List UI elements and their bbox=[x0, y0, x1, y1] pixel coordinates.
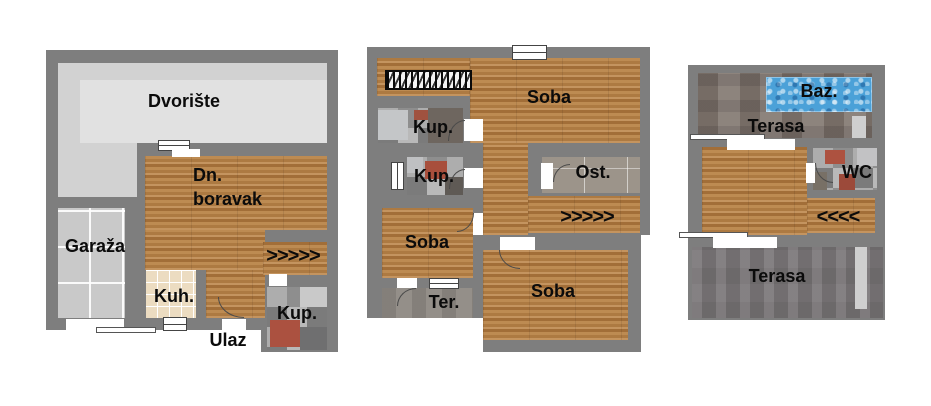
window-icon bbox=[391, 162, 404, 190]
room-label-bazen: Baz. bbox=[800, 82, 837, 100]
floor-plan-canvas: Dvorište Dn. boravak Garaža Kuh. Kup. Ul… bbox=[0, 0, 931, 406]
window-icon bbox=[512, 45, 547, 60]
bench-strip bbox=[852, 116, 866, 138]
door-opening bbox=[464, 168, 483, 188]
stairs-arrows-attic: <<<< bbox=[817, 207, 860, 227]
kitchen-window-icon bbox=[163, 317, 187, 331]
door-opening bbox=[473, 213, 483, 235]
door-opening bbox=[464, 119, 483, 141]
room-garaza-floor bbox=[58, 208, 125, 318]
door-opening bbox=[172, 149, 200, 157]
living-label-line2: boravak bbox=[193, 187, 262, 211]
room-label-kuhinja: Kuh. bbox=[154, 287, 194, 305]
door-opening bbox=[397, 278, 417, 288]
room-label-soba-left: Soba bbox=[405, 233, 449, 251]
room-label-terasa-lower: Terasa bbox=[749, 267, 806, 285]
room-dvoriste-inner-floor bbox=[80, 80, 327, 143]
room-label-terasa-upper: Terasa bbox=[748, 117, 805, 135]
entrance-door-opening bbox=[222, 319, 246, 330]
wc-door-opening bbox=[806, 163, 815, 183]
room-label-ulaz: Ulaz bbox=[209, 331, 246, 349]
bath-tile-light bbox=[378, 110, 408, 140]
room-label-kupaonica1: Kup. bbox=[413, 118, 453, 136]
first-hallway-floor bbox=[483, 143, 528, 235]
room-living-floor-mid bbox=[145, 230, 265, 270]
terrace-door-opening bbox=[713, 237, 777, 248]
room-label-kupaonica2: Kup. bbox=[414, 167, 454, 185]
bath-tile-red bbox=[270, 320, 300, 347]
terrace-door-opening bbox=[727, 139, 795, 150]
room-label-soba-top: Soba bbox=[527, 88, 571, 106]
room-label-wc: WC bbox=[842, 163, 872, 181]
room-label-soba-bottom: Soba bbox=[531, 282, 575, 300]
bench-strip bbox=[855, 247, 867, 309]
room-terasa-small-floor bbox=[382, 288, 473, 318]
room-label-kupaonica: Kup. bbox=[277, 304, 317, 322]
room-label-terasa-small: Ter. bbox=[429, 293, 460, 311]
bath-tile-dark bbox=[300, 327, 327, 350]
room-label-garaza: Garaža bbox=[65, 237, 125, 255]
room-label-dvoriste: Dvorište bbox=[148, 92, 220, 110]
stairs-bath-opening bbox=[269, 274, 287, 286]
room-label-ostava: Ost. bbox=[575, 163, 610, 181]
door-opening bbox=[500, 237, 535, 250]
room-label-dnevni-boravak: Dn. boravak bbox=[193, 163, 262, 211]
garage-door-icon bbox=[96, 327, 156, 333]
window-icon bbox=[429, 278, 459, 289]
living-label-line1: Dn. bbox=[193, 163, 262, 187]
wardrobe-icon bbox=[385, 70, 472, 90]
attic-room-floor bbox=[702, 147, 807, 235]
stairs-arrows-first: >>>>> bbox=[560, 207, 613, 227]
stairs-arrows-ground: >>>>> bbox=[266, 246, 319, 266]
door-opening bbox=[541, 163, 553, 189]
